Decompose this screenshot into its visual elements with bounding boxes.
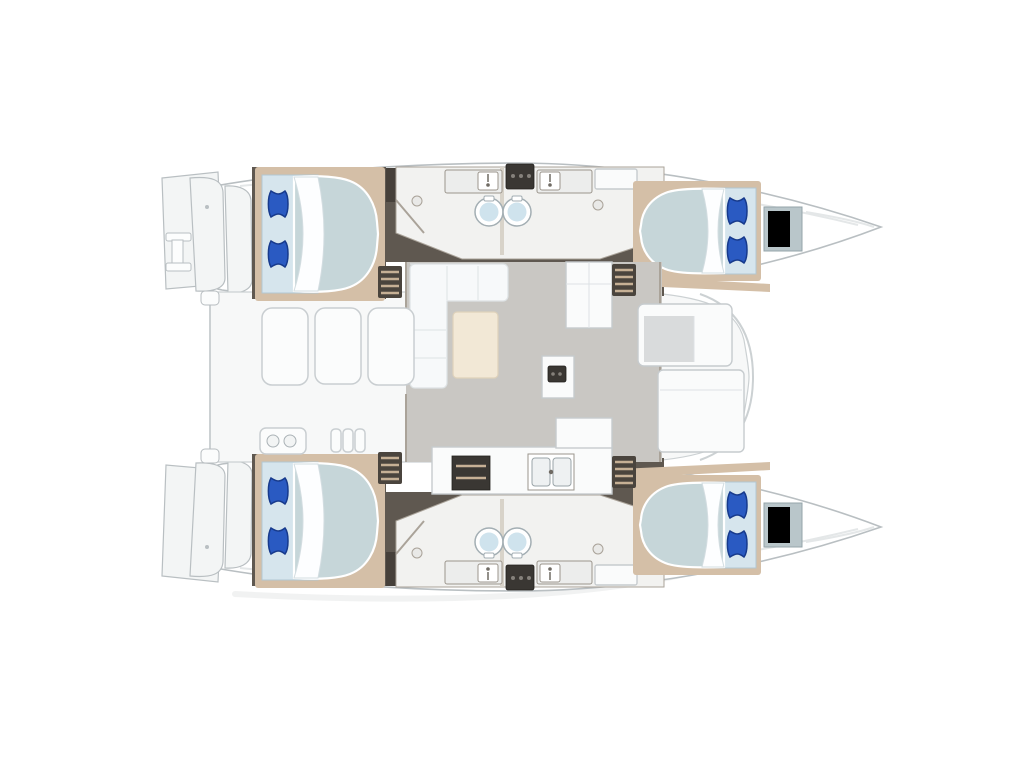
catamaran-floor-plan: [0, 0, 1024, 768]
galley-counter-wing: [556, 418, 612, 448]
starboard-transom: [162, 461, 252, 582]
salon-table: [453, 312, 498, 378]
steps-port-forward: [612, 264, 636, 296]
fridge-cabinet: [566, 262, 612, 328]
steps-port-aft: [378, 266, 402, 298]
bed-starboard-forward-cabin: [633, 475, 761, 575]
foredeck-sunpad: [658, 370, 744, 452]
steps-starboard-forward: [612, 456, 636, 488]
foredeck-footwell: [644, 316, 694, 362]
cockpit-helm-seat: [260, 428, 306, 454]
cockpit-step-tab: [355, 429, 365, 452]
cleat: [201, 449, 219, 463]
cockpit-bench-cushion: [368, 308, 414, 385]
cleat: [201, 291, 219, 305]
catamaran-floor-plan-page: [0, 0, 1024, 768]
cockpit-bench-cushion: [262, 308, 308, 385]
bed-starboard-aft-cabin: [255, 454, 385, 588]
galley-oven: [452, 456, 490, 490]
cockpit-step-tab: [331, 429, 341, 452]
starboard-heads: [396, 495, 664, 590]
cockpit-bench-cushion: [315, 308, 361, 384]
port-heads: [396, 164, 664, 259]
cockpit-step-tab: [343, 429, 353, 452]
nav-console: [542, 356, 574, 398]
bed-port-aft-cabin: [255, 167, 385, 301]
galley-sink: [528, 454, 574, 490]
steps-starboard-aft: [378, 452, 402, 484]
